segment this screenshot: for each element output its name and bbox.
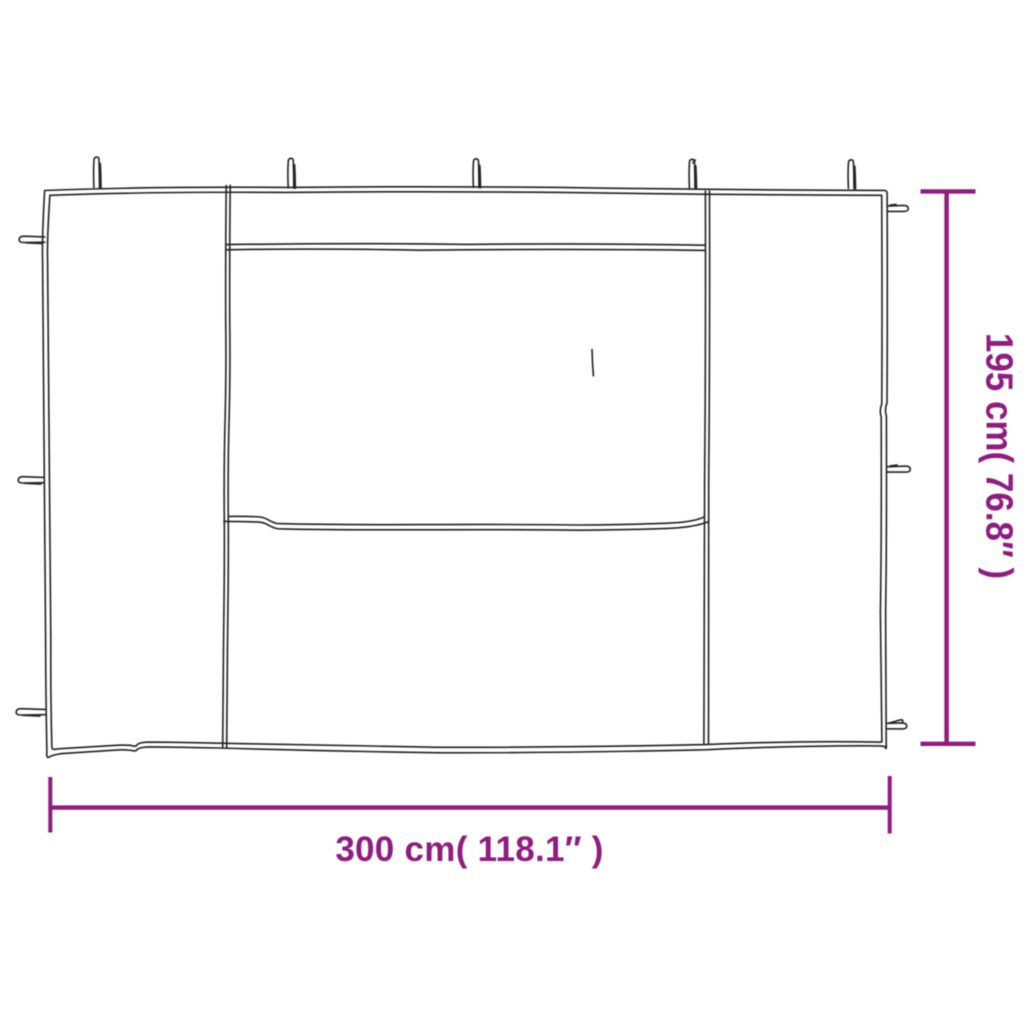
svg-text:300 cm( 118.1″ ): 300 cm( 118.1″ ) <box>335 830 603 869</box>
svg-text:195 cm( 76.8″ ): 195 cm( 76.8″ ) <box>978 333 1021 579</box>
